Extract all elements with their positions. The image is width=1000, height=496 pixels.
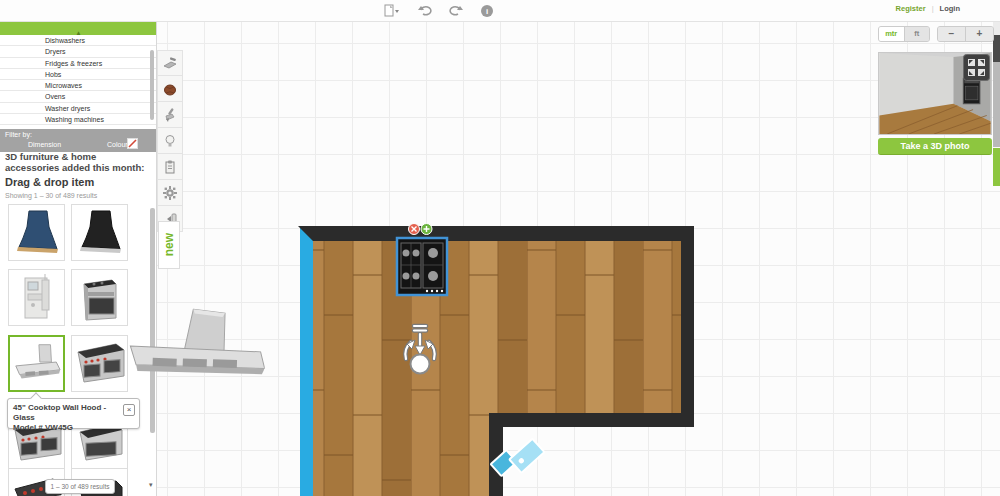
register-link[interactable]: Register [896, 4, 926, 13]
account-links: Register|Login [896, 4, 960, 13]
category-microwaves[interactable]: Microwaves [0, 80, 157, 91]
new-items-tab[interactable]: new [158, 221, 180, 269]
new-tab-label: new [162, 233, 176, 256]
unit-ft-button[interactable]: ft [904, 27, 930, 41]
gear-icon [162, 185, 178, 201]
drag-drop-label: Drag & drop item [5, 176, 94, 188]
svg-text:i: i [486, 7, 488, 16]
fullscreen-icon[interactable] [963, 54, 990, 81]
edge-strip [993, 62, 1000, 147]
link-separator: | [932, 4, 934, 13]
collapse-categories-bar[interactable]: ▲ [0, 22, 157, 35]
settings-tool-button[interactable] [157, 180, 183, 206]
paint-tool-button[interactable] [157, 102, 183, 128]
catalog-heading: 3D furniture & home accessories added th… [5, 151, 153, 173]
tooltip-item-model: Model # VW45G [13, 423, 73, 432]
trowel-icon [162, 55, 178, 71]
product-thumb-cooker[interactable] [71, 269, 128, 326]
delete-handle[interactable] [409, 224, 420, 235]
results-range-tooltip: 1 – 30 of 489 results [45, 479, 115, 494]
unit-mtr-button[interactable]: mtr [879, 27, 904, 41]
new-document-icon[interactable] [383, 3, 399, 19]
selected-left-wall[interactable] [300, 228, 313, 496]
material-icon [162, 81, 178, 97]
info-icon[interactable]: i [479, 3, 495, 19]
no-colour-icon[interactable] [127, 138, 138, 149]
trowel-tool-button[interactable] [157, 50, 183, 76]
notes-tool-button[interactable] [157, 154, 183, 180]
category-fridges-freezers[interactable]: Fridges & freezers [0, 58, 157, 69]
filter-dimension-link[interactable]: Dimension [28, 141, 61, 148]
category-dishwashers[interactable]: Dishwashers [0, 35, 157, 46]
paintbrush-icon [162, 107, 178, 123]
canvas-tools [157, 50, 183, 232]
category-ovens[interactable]: Ovens [0, 91, 157, 102]
filter-label: Filter by: [5, 131, 32, 138]
product-thumb-hood-blue[interactable] [8, 204, 65, 261]
product-thumb-machine-white[interactable] [8, 269, 65, 326]
tooltip-item-name: 45" Cooktop Wall Hood - Glass [13, 403, 106, 422]
category-dryers[interactable]: Dryers [0, 46, 157, 57]
zoom-controls: − + [937, 26, 994, 42]
material-tool-button[interactable] [157, 76, 183, 102]
lighting-tool-button[interactable] [157, 128, 183, 154]
scroll-down-arrow[interactable]: ▾ [149, 481, 153, 489]
unit-toggle: mtr ft [878, 26, 930, 42]
category-washer-dryers[interactable]: Washer dryers [0, 103, 157, 114]
filter-bar: Filter by: Dimension Colour [0, 129, 157, 152]
category-hobs[interactable]: Hobs [0, 69, 157, 80]
product-thumb-wall-hood-selected[interactable] [8, 335, 65, 392]
confirm-handle[interactable] [421, 224, 432, 235]
clipboard-icon [162, 159, 178, 175]
product-thumb-hood-black[interactable] [71, 204, 128, 261]
category-list: Dishwashers Dryers Fridges & freezers Ho… [0, 35, 157, 125]
category-washing-machines[interactable]: Washing machines [0, 114, 157, 125]
dragged-wall-hood[interactable] [121, 298, 271, 408]
edge-strip [993, 35, 1000, 62]
login-link[interactable]: Login [940, 4, 960, 13]
take-3d-photo-button[interactable]: Take a 3D photo [878, 138, 992, 155]
app-window: i Register|Login ▲ Dishwashers Dryers Fr… [0, 0, 1000, 496]
redo-icon[interactable] [448, 3, 464, 19]
undo-icon[interactable] [417, 3, 433, 19]
edge-strip [993, 148, 1000, 186]
lightbulb-icon [162, 133, 178, 149]
results-count: Showing 1 – 30 of 489 results [5, 192, 97, 199]
category-scrollbar[interactable] [150, 50, 154, 120]
top-toolbar: i Register|Login [0, 0, 1000, 22]
filter-colour-link[interactable]: Colour [107, 141, 128, 148]
floorplan-room[interactable] [295, 220, 705, 496]
zoom-in-button[interactable]: + [965, 27, 993, 41]
zoom-out-button[interactable]: − [938, 27, 965, 41]
gas-hob-item[interactable] [397, 238, 447, 295]
tooltip-close-button[interactable]: × [123, 404, 135, 416]
item-name-tooltip: 45" Cooktop Wall Hood - GlassModel # VW4… [7, 398, 140, 429]
product-thumb-range-large[interactable] [71, 335, 128, 392]
